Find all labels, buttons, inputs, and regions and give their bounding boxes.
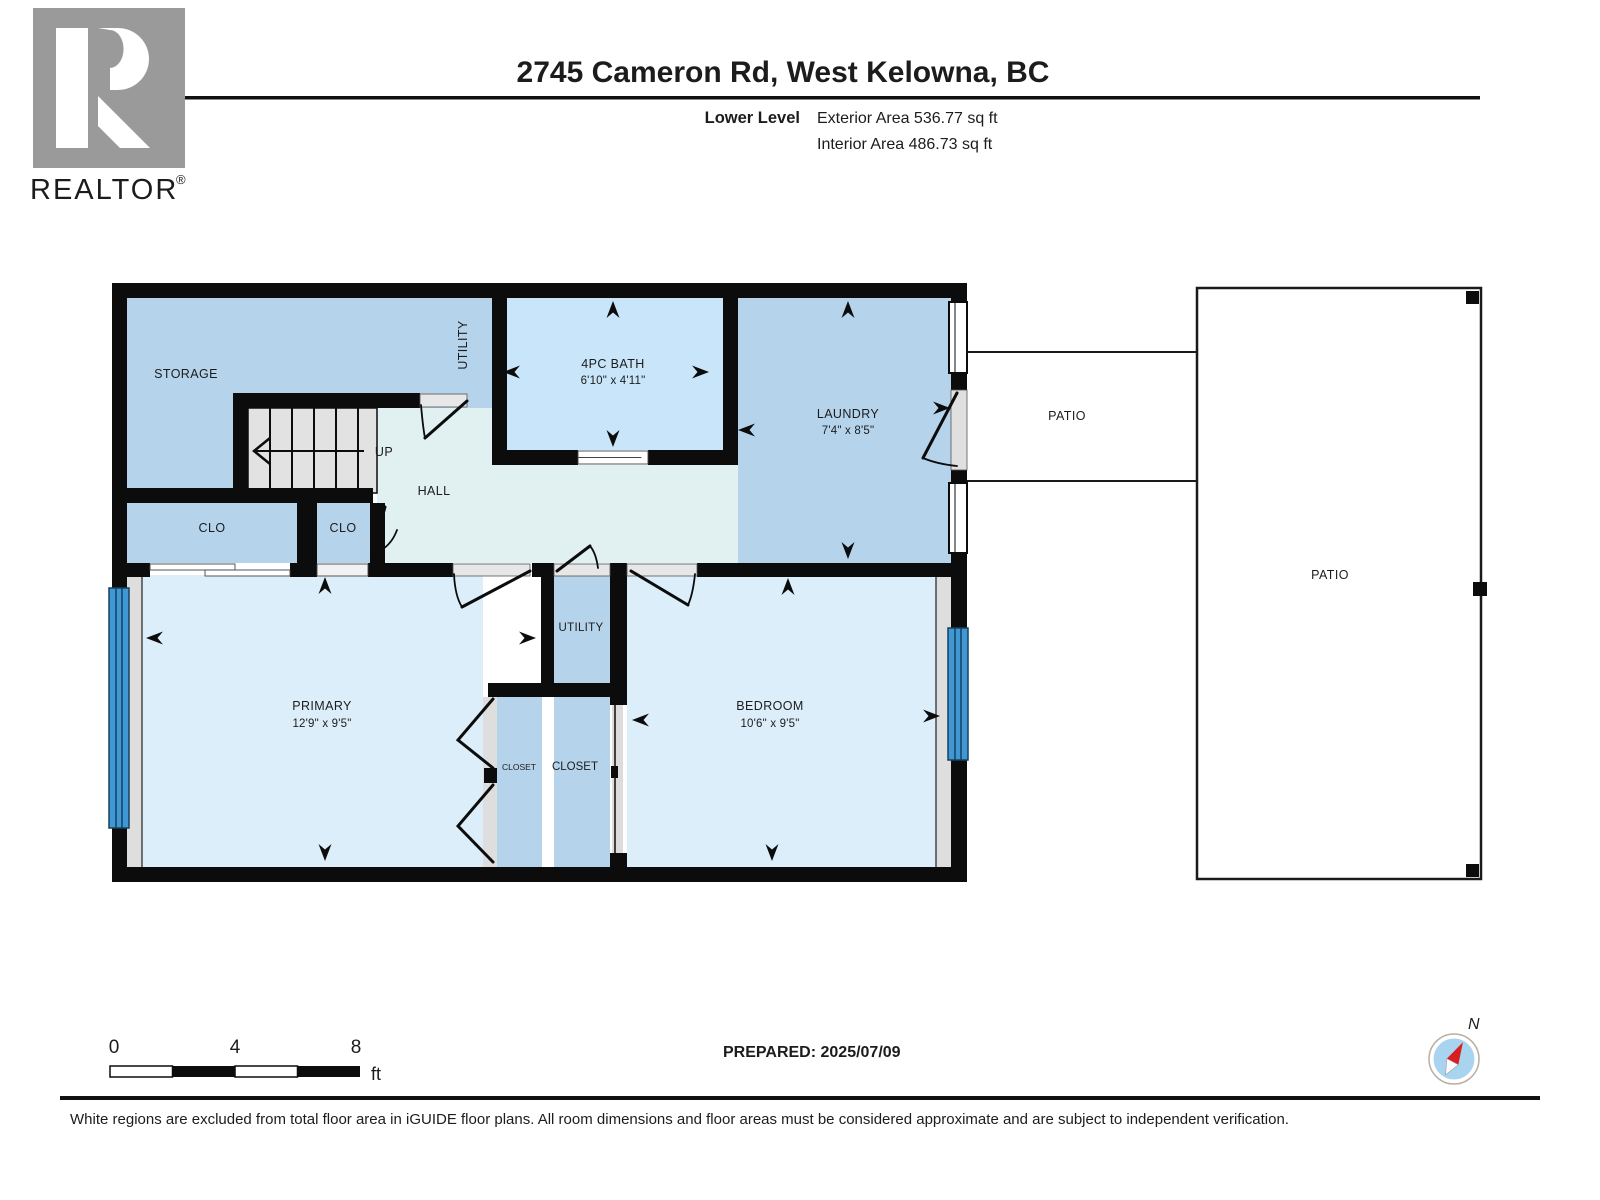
- label-laundry: LAUNDRY: [817, 407, 880, 421]
- dims-bedroom: 10'6" x 9'5": [740, 718, 799, 730]
- disclaimer-text: White regions are excluded from total fl…: [70, 1111, 1289, 1128]
- scale-tick-0: 0: [109, 1037, 120, 1058]
- hall-door-sill: [420, 394, 467, 407]
- realtor-logo: REALTOR ®: [30, 8, 186, 206]
- label-closet-left: CLOSET: [502, 762, 536, 772]
- floorplan-canvas: 2745 Cameron Rd, West Kelowna, BC Lower …: [0, 0, 1600, 1200]
- label-primary: PRIMARY: [292, 699, 352, 713]
- room-hall-right: [492, 465, 738, 563]
- realtor-wordmark: REALTOR: [30, 174, 178, 206]
- label-patio-near: PATIO: [1048, 409, 1086, 423]
- interior-area: Interior Area 486.73 sq ft: [817, 136, 993, 153]
- label-patio-far: PATIO: [1311, 568, 1349, 582]
- exterior-area: Exterior Area 536.77 sq ft: [817, 110, 998, 127]
- label-up: UP: [375, 445, 393, 459]
- label-utility-side: UTILITY: [456, 320, 470, 370]
- realtor-logo-block: [33, 8, 185, 168]
- footer: White regions are excluded from total fl…: [60, 1096, 1540, 1128]
- patio-outline: [1197, 288, 1481, 879]
- label-bath: 4PC BATH: [581, 357, 644, 371]
- label-hall: HALL: [418, 484, 451, 498]
- floorplan-page: 2745 Cameron Rd, West Kelowna, BC Lower …: [0, 0, 1600, 1200]
- label-clo-right: CLO: [330, 521, 357, 535]
- footer-divider: [60, 1096, 1540, 1100]
- label-storage: STORAGE: [154, 367, 218, 381]
- header: 2745 Cameron Rd, West Kelowna, BC Lower …: [75, 56, 1480, 153]
- laundry-window-icon: [949, 302, 967, 373]
- room-closet-right: [554, 697, 610, 867]
- primary-door-sill: [453, 564, 530, 576]
- title-divider: [75, 96, 1480, 100]
- realtor-r-icon: [56, 28, 88, 148]
- dims-bath: 6'10" x 4'11": [581, 375, 646, 387]
- compass-north-label: N: [1468, 1016, 1480, 1033]
- label-closet-right: CLOSET: [552, 761, 598, 773]
- label-utility: UTILITY: [559, 622, 604, 634]
- level-label: Lower Level: [705, 109, 800, 127]
- scale-bar: 0 4 8 ft: [109, 1037, 381, 1084]
- stairs: [248, 408, 377, 493]
- patio-post: [1466, 864, 1479, 877]
- primary-window-icon: [109, 588, 129, 828]
- label-clo-left: CLO: [199, 521, 226, 535]
- scale-tick-8: 8: [351, 1037, 362, 1058]
- prepared-date: PREPARED: 2025/07/09: [723, 1044, 901, 1061]
- patio-post: [1473, 582, 1487, 596]
- bedroom-window-icon: [948, 628, 968, 760]
- patio-post: [1466, 291, 1479, 304]
- registered-mark: ®: [176, 172, 186, 187]
- clo2-sill: [317, 564, 368, 576]
- compass-icon: N: [1429, 1016, 1480, 1084]
- label-bedroom: BEDROOM: [736, 699, 803, 713]
- scale-tick-4: 4: [230, 1037, 241, 1058]
- closet-sliding-door: [611, 705, 623, 853]
- clo-bypass-door: [150, 564, 235, 570]
- room-bath: [507, 298, 723, 450]
- room-fills: [127, 298, 951, 867]
- page-title: 2745 Cameron Rd, West Kelowna, BC: [517, 56, 1050, 89]
- scale-unit: ft: [371, 1064, 381, 1084]
- patios: [967, 288, 1487, 879]
- room-closet-left: [497, 697, 542, 867]
- dims-laundry: 7'4" x 8'5": [822, 425, 874, 437]
- dims-primary: 12'9" x 9'5": [292, 718, 351, 730]
- laundry-window2-icon: [949, 483, 967, 553]
